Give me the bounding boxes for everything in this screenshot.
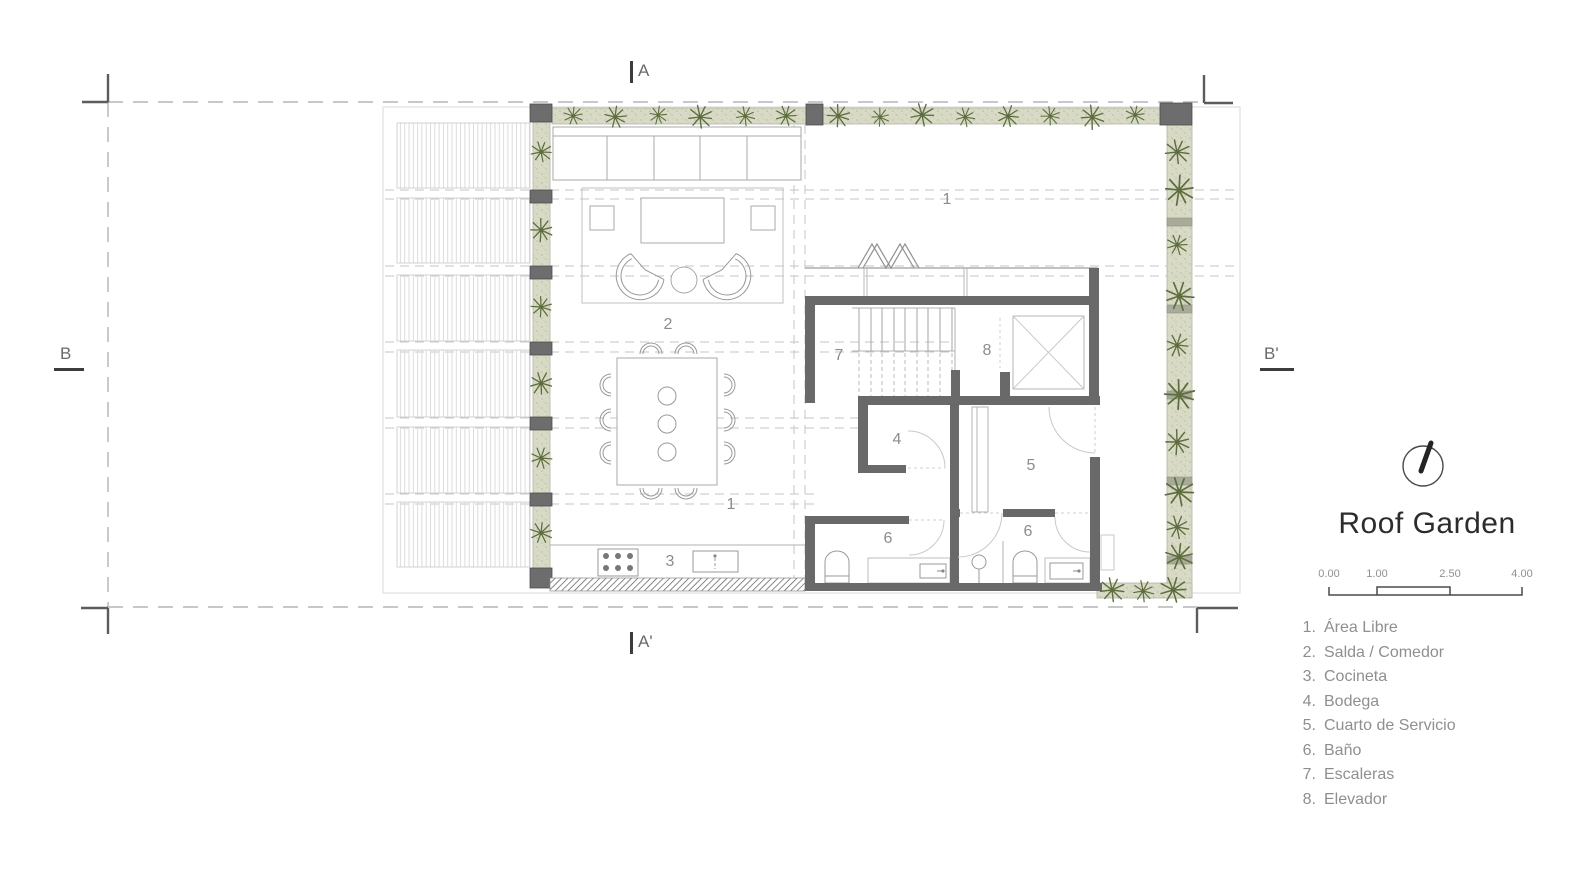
section-marker-a: A [638, 61, 649, 81]
scale-tick-2: 2.50 [1439, 568, 1460, 580]
dining-furniture [600, 343, 735, 499]
north-arrow-icon [1403, 443, 1443, 486]
ottoman [671, 267, 697, 293]
dining-table [617, 358, 717, 485]
legend-number: 3. [1294, 668, 1316, 686]
upper-strip [805, 244, 1098, 297]
legend-number: 6. [1294, 742, 1316, 760]
legend-number: 2. [1294, 644, 1316, 662]
legend-number: 5. [1294, 717, 1316, 735]
section-marker-b: B [60, 344, 71, 364]
legend-number: 4. [1294, 693, 1316, 711]
legend-label: Escaleras [1324, 766, 1394, 784]
legend-label: Cuarto de Servicio [1324, 717, 1456, 735]
side-table [590, 206, 614, 230]
label-stairs: 7 [835, 347, 844, 365]
label-bath-left: 6 [884, 530, 893, 548]
label-kitchen: 3 [666, 553, 675, 571]
legend-label: Elevador [1324, 791, 1387, 809]
legend-label: Cocineta [1324, 668, 1387, 686]
legend-number: 1. [1294, 619, 1316, 637]
elevator-shaft [1013, 316, 1084, 389]
scale-bar [1329, 587, 1522, 595]
scale-tick-1: 1.00 [1366, 568, 1387, 580]
shower-drain [972, 555, 986, 569]
exterior-box [1101, 535, 1114, 570]
legend-item: 5.Cuarto de Servicio [1294, 717, 1456, 742]
section-cut-bar-bottom [630, 632, 633, 654]
legend-label: Salda / Comedor [1324, 644, 1444, 662]
legend: 1.Área Libre 2.Salda / Comedor 3.Cocinet… [1294, 619, 1456, 815]
section-cut-bar-right [1260, 368, 1294, 371]
living-room-furniture [553, 127, 801, 309]
label-elevator: 8 [983, 342, 992, 360]
section-marker-a-prime: A' [638, 632, 653, 652]
legend-item: 6.Baño [1294, 742, 1456, 767]
legend-item: 8.Elevador [1294, 791, 1456, 816]
legend-number: 8. [1294, 791, 1316, 809]
lounge-chair [701, 252, 761, 310]
legend-item: 2.Salda / Comedor [1294, 644, 1456, 669]
label-storage: 4 [893, 431, 902, 449]
section-cut-bar-top [630, 61, 633, 83]
lounge-chair [607, 252, 667, 310]
legend-label: Baño [1324, 742, 1361, 760]
legend-item: 4.Bodega [1294, 693, 1456, 718]
service-closet [972, 407, 988, 512]
bathroom-fixtures [825, 535, 1114, 583]
legend-item: 3.Cocineta [1294, 668, 1456, 693]
floor-plan-sheet: A A' B B' 1 2 1 3 4 5 6 6 7 8 Roof Garde… [0, 0, 1582, 890]
legend-item: 1.Área Libre [1294, 619, 1456, 644]
skylight-zigzag [858, 244, 914, 268]
coffee-table [641, 198, 724, 243]
legend-item: 7.Escaleras [1294, 766, 1456, 791]
sofa [553, 127, 801, 180]
scale-tick-3: 4.00 [1511, 568, 1532, 580]
section-marker-b-prime: B' [1264, 344, 1279, 364]
section-cut-bar-left [54, 368, 84, 371]
scale-tick-0: 0.00 [1318, 568, 1339, 580]
legend-label: Bodega [1324, 693, 1379, 711]
hatched-wall [550, 578, 805, 591]
label-service-room: 5 [1027, 457, 1036, 475]
label-living: 2 [664, 316, 673, 334]
label-bath-right: 6 [1024, 523, 1033, 541]
side-table [751, 206, 775, 230]
toilet [825, 551, 849, 583]
legend-number: 7. [1294, 766, 1316, 784]
page-title: Roof Garden [1338, 507, 1515, 541]
toilet [1013, 551, 1037, 583]
legend-label: Área Libre [1324, 619, 1398, 637]
label-terrace: 1 [943, 191, 952, 209]
kitchenette [550, 545, 805, 591]
label-living-secondary: 1 [727, 496, 736, 514]
